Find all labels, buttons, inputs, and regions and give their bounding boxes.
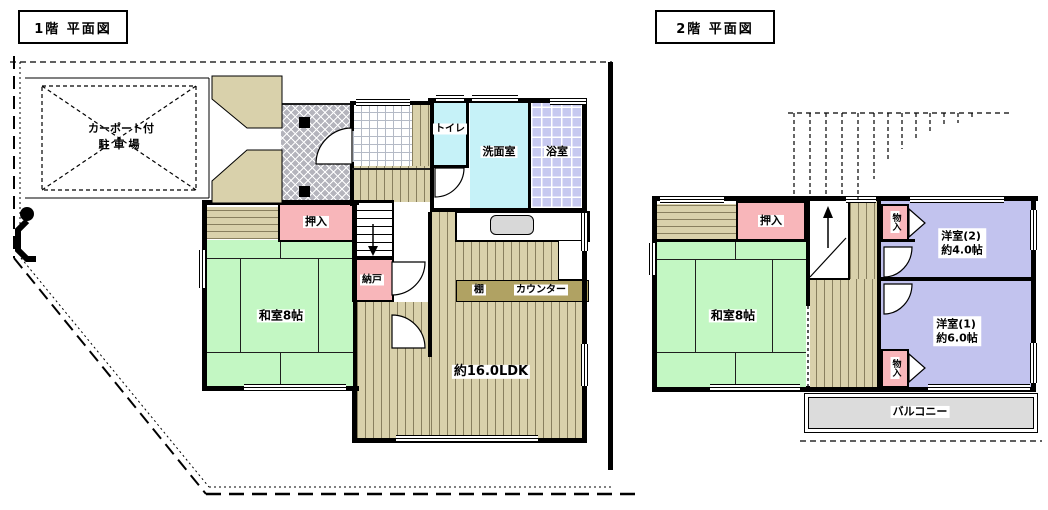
gate-post-marker xyxy=(20,207,34,221)
window xyxy=(581,344,588,386)
balcony-label: バルコニー xyxy=(891,406,950,418)
tokonoma-alcove-1f xyxy=(206,207,278,239)
window xyxy=(396,435,538,442)
floor2-title-box: 2階 平面図 xyxy=(655,10,775,44)
counter-label: カウンター xyxy=(514,285,568,296)
tatami-line xyxy=(735,241,736,259)
floor1-title: 1階 平面図 xyxy=(34,18,112,37)
site-boundary-diagonal xyxy=(14,258,206,494)
washitsu-1f-label: 和室8帖 xyxy=(257,309,305,322)
window xyxy=(581,213,588,251)
approach-block-upper xyxy=(212,76,282,128)
floor2-title: 2階 平面図 xyxy=(676,18,754,37)
floor-plan-canvas: 1階 平面図 2階 平面図 xyxy=(0,0,1048,510)
window xyxy=(928,384,1030,391)
window xyxy=(660,196,724,203)
carport-label-line1: カーポート付 xyxy=(86,123,156,135)
wall xyxy=(430,98,434,212)
tatami-line xyxy=(280,240,281,258)
window xyxy=(356,99,410,106)
tatami-line xyxy=(772,259,773,352)
nando-label: 納戸 xyxy=(360,275,384,286)
tatami-line xyxy=(735,352,736,387)
monoire-lower-label: 物入 xyxy=(891,357,900,379)
window xyxy=(649,243,656,275)
wall xyxy=(352,386,357,443)
window xyxy=(472,95,518,102)
carport-label-line2: 駐車場 xyxy=(97,139,146,151)
wall xyxy=(582,98,587,443)
roof-slope-lines xyxy=(794,113,972,200)
toilet-door-arc xyxy=(435,168,464,197)
floor1-title-box: 1階 平面図 xyxy=(18,10,128,44)
hall-wood-upper xyxy=(352,166,432,202)
washroom-label: 洗面室 xyxy=(481,146,518,158)
ldk-label: 約16.0LDK xyxy=(452,365,530,379)
window xyxy=(199,250,206,288)
tatami-line xyxy=(695,259,696,352)
hall-door-arc-upper xyxy=(392,262,425,295)
shelf-label: 棚 xyxy=(472,285,486,296)
window xyxy=(846,196,876,203)
hall-wood-lower xyxy=(357,302,431,438)
wall xyxy=(528,98,531,212)
porch-post xyxy=(299,186,310,197)
western-room2-label-line1: 洋室(2) xyxy=(941,229,983,243)
genkan-wood-step xyxy=(412,104,432,169)
western-room1-label: 洋室(1) 約6.0帖 xyxy=(933,316,981,346)
tokonoma-alcove-2f xyxy=(657,204,736,241)
monoire-upper-label: 物入 xyxy=(891,211,900,233)
western-room1-label-line1: 洋室(1) xyxy=(936,317,978,331)
window xyxy=(1030,343,1037,383)
oshiire-2f-label: 押入 xyxy=(758,215,784,227)
hall-wood-2f-upper xyxy=(850,201,879,279)
tatami-line xyxy=(318,258,319,352)
porch-edge-line xyxy=(281,103,351,105)
entrance-porch xyxy=(281,105,351,205)
window xyxy=(550,98,586,105)
wall xyxy=(202,200,207,390)
wall xyxy=(877,277,1036,281)
staircase-2f xyxy=(808,198,850,280)
gate-marker xyxy=(18,221,36,259)
wall xyxy=(652,196,657,392)
tatami-line xyxy=(657,259,807,260)
wall xyxy=(433,165,468,168)
staircase-1f xyxy=(352,200,394,258)
tatami-line xyxy=(240,258,241,352)
wall xyxy=(879,239,915,242)
window xyxy=(1030,210,1037,250)
wall xyxy=(428,212,432,357)
western-room2-label: 洋室(2) 約4.0帖 xyxy=(938,228,986,258)
approach-block-lower xyxy=(212,150,282,203)
western-room1-label-line2: 約6.0帖 xyxy=(936,331,978,345)
oshiire-1f-label: 押入 xyxy=(303,216,329,228)
kitchen-sink xyxy=(490,215,534,235)
wall xyxy=(652,239,810,242)
window xyxy=(910,196,1004,203)
tatami-line xyxy=(207,258,353,259)
fusuma-opening xyxy=(806,306,810,386)
porch-post xyxy=(299,117,310,128)
genkan-tile-floor xyxy=(353,105,412,169)
wall xyxy=(430,208,586,212)
tatami-line xyxy=(280,352,281,386)
window xyxy=(244,384,346,391)
wall xyxy=(350,101,354,131)
wall xyxy=(202,200,359,205)
hall-wood-2f-lower xyxy=(808,279,879,387)
bath-label: 浴室 xyxy=(544,146,570,158)
toilet-label: トイレ xyxy=(433,124,467,135)
boundary-fence xyxy=(608,62,613,470)
wall xyxy=(877,196,881,392)
window xyxy=(436,95,464,102)
tatami-line xyxy=(657,352,807,353)
genkan-step-line xyxy=(352,168,432,170)
window xyxy=(710,384,800,391)
wall xyxy=(353,200,357,390)
site-boundary-diagonal-inner xyxy=(21,258,209,487)
western-room2-label-line2: 約4.0帖 xyxy=(941,243,983,257)
washitsu-2f-label: 和室8帖 xyxy=(709,309,757,322)
